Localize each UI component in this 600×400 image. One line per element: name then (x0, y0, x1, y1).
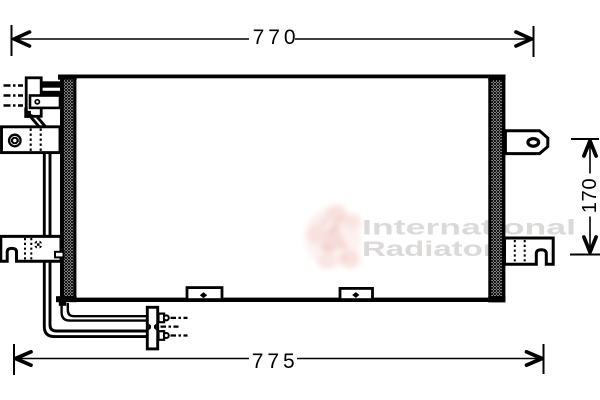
svg-text:170: 170 (579, 178, 600, 213)
svg-text:770: 770 (253, 26, 296, 49)
svg-text:775: 775 (252, 350, 295, 373)
svg-text:International: International (362, 217, 576, 240)
